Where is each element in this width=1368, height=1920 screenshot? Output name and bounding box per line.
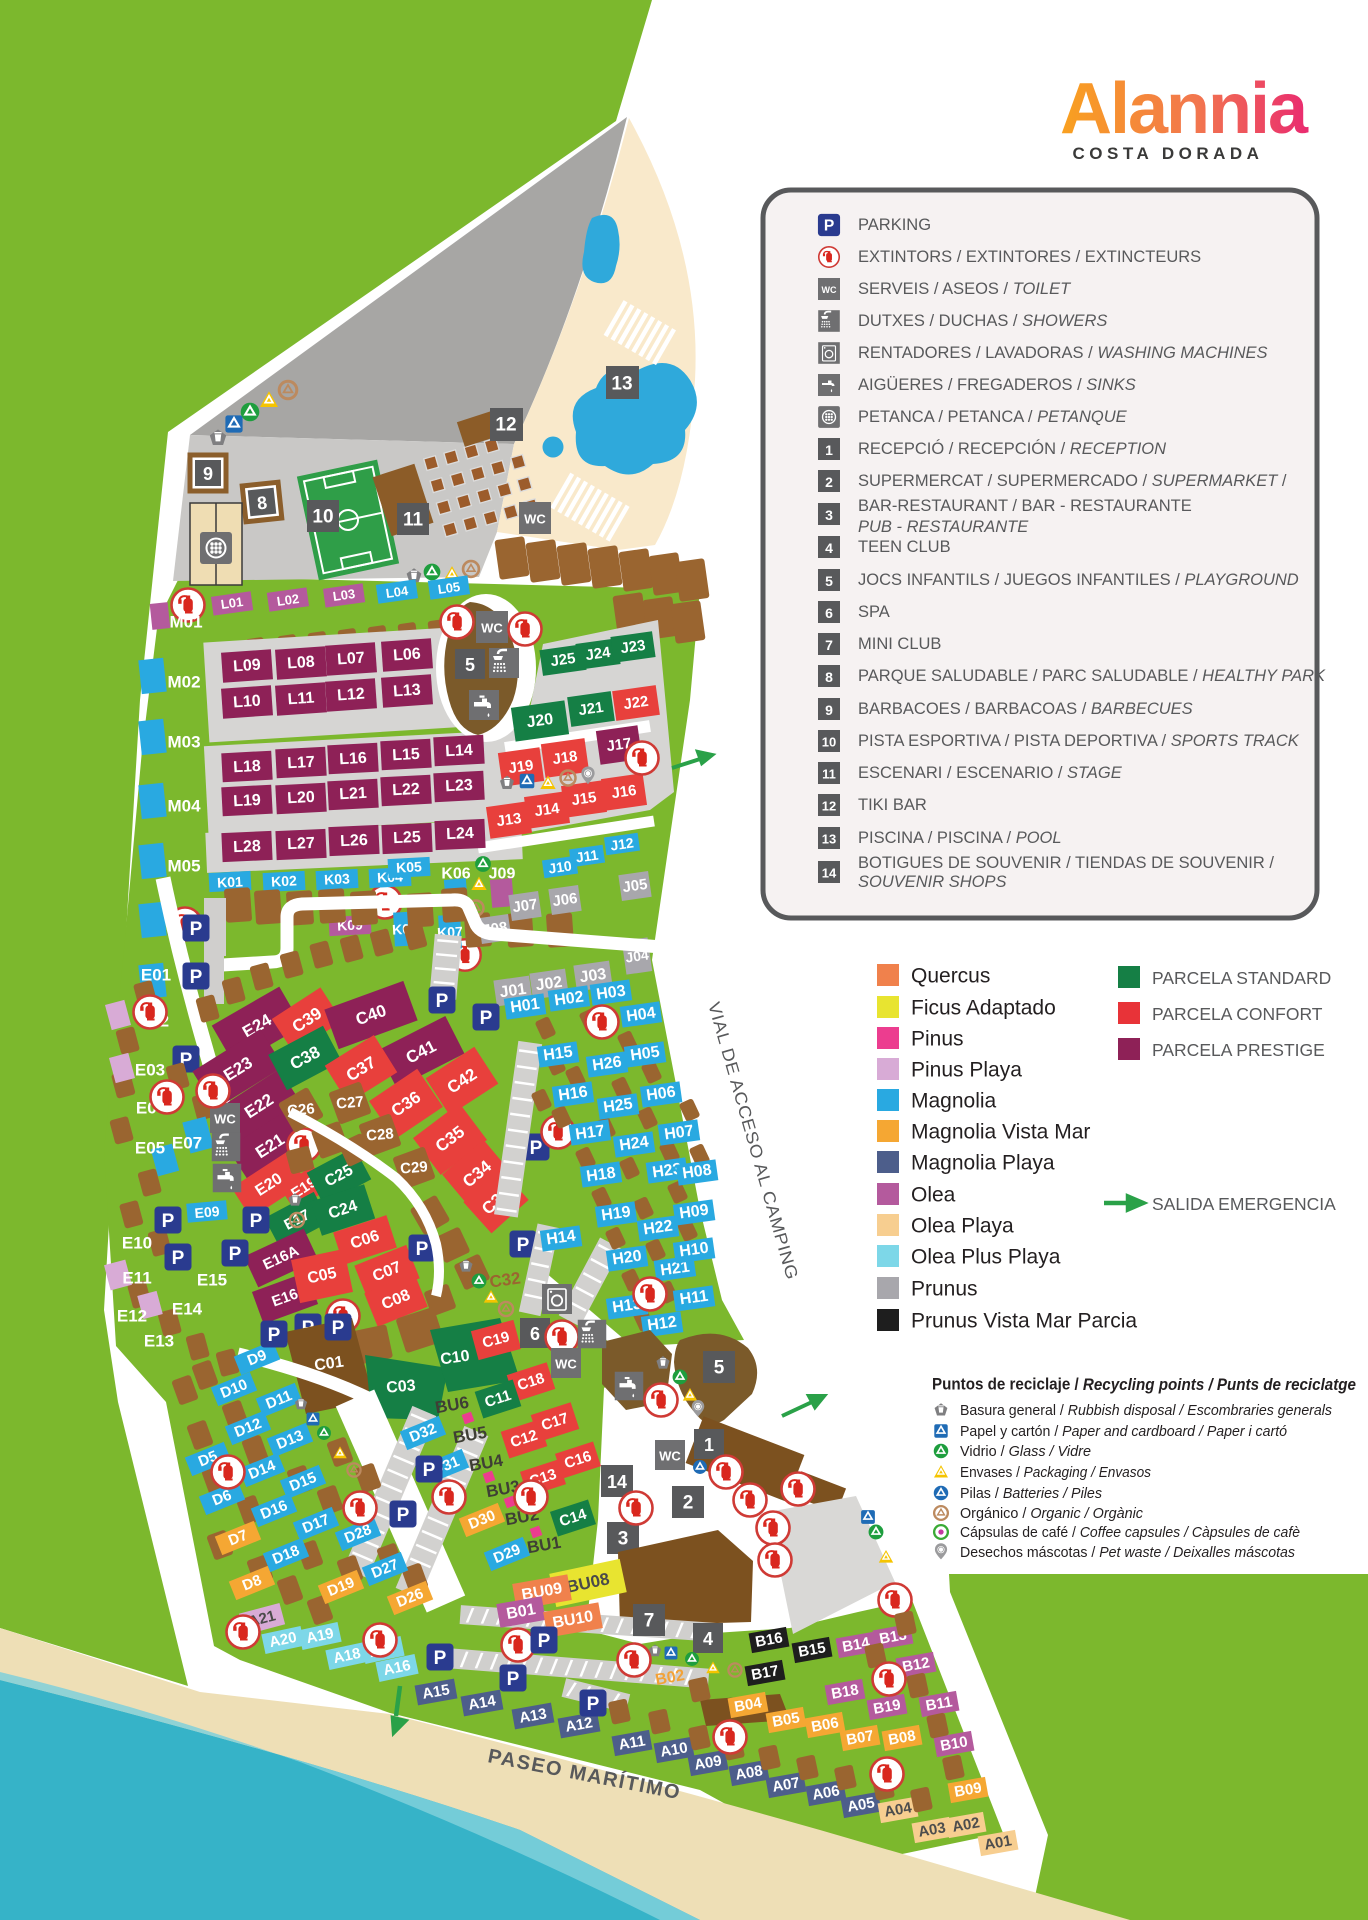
svg-text:6: 6 xyxy=(825,605,833,621)
svg-text:SOUVENIR SHOPS: SOUVENIR SHOPS xyxy=(858,873,1007,891)
svg-text:8: 8 xyxy=(256,493,268,514)
svg-text:DUTXES / DUCHAS / SHOWERS: DUTXES / DUCHAS / SHOWERS xyxy=(858,312,1107,330)
svg-text:PETANCA / PETANCA / PETANQUE: PETANCA / PETANCA / PETANQUE xyxy=(858,408,1128,426)
svg-text:L12: L12 xyxy=(337,686,366,705)
svg-text:WC: WC xyxy=(524,512,546,527)
svg-text:4: 4 xyxy=(703,1629,713,1649)
svg-text:L22: L22 xyxy=(392,781,421,799)
svg-text:L05: L05 xyxy=(437,579,461,597)
svg-text:L18: L18 xyxy=(233,758,262,776)
svg-text:E11: E11 xyxy=(122,1269,151,1288)
svg-text:J12: J12 xyxy=(609,834,635,853)
svg-text:L23: L23 xyxy=(445,777,474,795)
svg-text:1: 1 xyxy=(825,442,833,458)
svg-text:WC: WC xyxy=(822,285,837,295)
svg-text:14: 14 xyxy=(607,1472,627,1492)
svg-text:M01: M01 xyxy=(169,613,202,632)
svg-text:Pinus Playa: Pinus Playa xyxy=(911,1059,1022,1082)
svg-text:K05: K05 xyxy=(396,858,423,875)
svg-text:C03: C03 xyxy=(386,1377,417,1397)
svg-text:5: 5 xyxy=(465,655,475,675)
svg-text:J24: J24 xyxy=(584,644,612,664)
svg-text:L03: L03 xyxy=(332,586,356,604)
svg-text:J16: J16 xyxy=(610,782,637,802)
svg-text:SUPERMERCAT / SUPERMERCADO / S: SUPERMERCAT / SUPERMERCADO / SUPERMARKET… xyxy=(858,472,1287,490)
svg-text:RECEPCIÓ / RECEPCIÓN / RECEPTI: RECEPCIÓ / RECEPCIÓN / RECEPTION xyxy=(858,439,1166,458)
svg-text:ESCENARI / ESCENARIO / STAGE: ESCENARI / ESCENARIO / STAGE xyxy=(858,764,1123,782)
svg-text:5: 5 xyxy=(714,1358,725,1379)
svg-text:PARCELA CONFORT: PARCELA CONFORT xyxy=(1152,1004,1323,1024)
svg-text:JOCS INFANTILS / JUEGOS INFANT: JOCS INFANTILS / JUEGOS INFANTILES / PLA… xyxy=(858,571,1299,589)
svg-text:Orgánico / Organic / Orgànic: Orgánico / Organic / Orgànic xyxy=(960,1506,1144,1522)
svg-text:J23: J23 xyxy=(619,637,646,657)
svg-text:PISTA ESPORTIVA / PISTA DEPORT: PISTA ESPORTIVA / PISTA DEPORTIVA / SPOR… xyxy=(858,732,1300,750)
svg-text:WC: WC xyxy=(214,1112,236,1127)
svg-text:E13: E13 xyxy=(144,1332,174,1351)
svg-text:Pinus: Pinus xyxy=(911,1028,964,1051)
svg-text:J07: J07 xyxy=(511,896,538,916)
svg-text:PARKING: PARKING xyxy=(858,216,931,234)
svg-text:9: 9 xyxy=(825,702,833,718)
svg-text:4: 4 xyxy=(825,540,833,556)
svg-text:L01: L01 xyxy=(220,594,244,612)
svg-text:11: 11 xyxy=(403,510,424,531)
svg-text:L16: L16 xyxy=(339,750,368,768)
svg-text:L25: L25 xyxy=(393,829,421,847)
svg-text:BOTIGUES DE SOUVENIR / TIENDAS: BOTIGUES DE SOUVENIR / TIENDAS DE SOUVEN… xyxy=(858,854,1274,872)
svg-text:Vidrio / Glass / Vidre: Vidrio / Glass / Vidre xyxy=(960,1444,1091,1460)
svg-text:J10: J10 xyxy=(547,857,573,876)
svg-text:Magnolia Playa: Magnolia Playa xyxy=(911,1152,1055,1175)
svg-text:Papel y cartón / Paper and car: Papel y cartón / Paper and cardboard / P… xyxy=(960,1424,1287,1440)
svg-text:L14: L14 xyxy=(445,742,474,760)
svg-text:8: 8 xyxy=(825,669,833,685)
svg-text:J15: J15 xyxy=(570,789,597,809)
svg-text:Olea Playa: Olea Playa xyxy=(911,1215,1014,1238)
svg-text:L06: L06 xyxy=(393,646,422,665)
svg-text:Magnolia: Magnolia xyxy=(911,1090,997,1113)
svg-text:Olea Plus Playa: Olea Plus Playa xyxy=(911,1246,1061,1269)
svg-text:Prunus Vista Mar Parcia: Prunus Vista Mar Parcia xyxy=(911,1310,1137,1333)
svg-text:7: 7 xyxy=(825,637,833,653)
svg-text:SPA: SPA xyxy=(858,603,890,621)
svg-text:MINI CLUB: MINI CLUB xyxy=(858,635,941,653)
svg-text:L19: L19 xyxy=(233,792,262,810)
svg-text:EXTINTORS / EXTINTORES / EXTIN: EXTINTORS / EXTINTORES / EXTINCTEURS xyxy=(858,248,1201,266)
svg-text:Desechos máscotas / Pet waste: Desechos máscotas / Pet waste / Deixalle… xyxy=(960,1545,1295,1561)
svg-text:PISCINA / PISCINA / POOL: PISCINA / PISCINA / POOL xyxy=(858,829,1062,847)
svg-text:L26: L26 xyxy=(340,832,368,850)
svg-text:Prunus: Prunus xyxy=(911,1278,978,1301)
svg-text:6: 6 xyxy=(530,1324,540,1344)
svg-text:TEEN CLUB: TEEN CLUB xyxy=(858,538,951,556)
svg-text:Quercus: Quercus xyxy=(911,965,990,988)
svg-text:7: 7 xyxy=(644,1611,655,1632)
svg-text:RENTADORES / LAVADORAS / WASHI: RENTADORES / LAVADORAS / WASHING MACHINE… xyxy=(858,344,1268,362)
svg-text:E14: E14 xyxy=(172,1300,203,1319)
svg-text:L17: L17 xyxy=(287,754,316,772)
svg-text:L11: L11 xyxy=(287,690,315,709)
svg-text:SALIDA EMERGENCIA: SALIDA EMERGENCIA xyxy=(1152,1194,1336,1214)
svg-text:14: 14 xyxy=(822,866,837,881)
svg-text:L07: L07 xyxy=(337,650,366,669)
svg-text:M04: M04 xyxy=(167,797,201,816)
svg-text:E05: E05 xyxy=(135,1139,165,1158)
svg-text:Pilas / Batteries / Piles: Pilas / Batteries / Piles xyxy=(960,1486,1102,1502)
svg-text:PARCELA PRESTIGE: PARCELA PRESTIGE xyxy=(1152,1040,1325,1060)
svg-text:BAR-RESTAURANT / BAR - RESTAUR: BAR-RESTAURANT / BAR - RESTAURANTE xyxy=(858,497,1192,515)
svg-text:C28: C28 xyxy=(366,1125,395,1144)
svg-text:E15: E15 xyxy=(197,1271,227,1290)
svg-text:L15: L15 xyxy=(392,746,421,764)
svg-text:SERVEIS / ASEOS / TOILET: SERVEIS / ASEOS / TOILET xyxy=(858,280,1072,298)
svg-text:9: 9 xyxy=(203,464,213,484)
svg-text:11: 11 xyxy=(822,767,836,782)
svg-text:M02: M02 xyxy=(167,673,200,692)
svg-text:E09: E09 xyxy=(194,1203,220,1221)
svg-text:Olea: Olea xyxy=(911,1184,956,1207)
svg-text:BARBACOES / BARBACOAS / BARBEC: BARBACOES / BARBACOAS / BARBECUES xyxy=(858,700,1193,718)
svg-text:M03: M03 xyxy=(167,733,200,752)
svg-text:J05: J05 xyxy=(621,876,648,896)
svg-text:E03: E03 xyxy=(135,1061,165,1080)
svg-text:J21: J21 xyxy=(577,699,604,719)
svg-text:13: 13 xyxy=(822,832,836,847)
svg-text:J11: J11 xyxy=(575,846,600,865)
svg-text:E12: E12 xyxy=(117,1307,147,1326)
svg-text:2: 2 xyxy=(683,1493,694,1514)
svg-text:12: 12 xyxy=(822,799,836,814)
svg-text:E07: E07 xyxy=(172,1134,202,1153)
svg-text:Ficus Adaptado: Ficus Adaptado xyxy=(911,997,1056,1020)
svg-text:C29: C29 xyxy=(400,1158,429,1177)
svg-text:L13: L13 xyxy=(393,682,422,701)
svg-text:L10: L10 xyxy=(233,693,262,712)
svg-text:Envases / Packaging / Envasos: Envases / Packaging / Envasos xyxy=(960,1465,1151,1481)
svg-text:J13: J13 xyxy=(495,810,522,830)
svg-text:Basura general / Rubbish dispo: Basura general / Rubbish disposal / Esco… xyxy=(960,1403,1332,1419)
svg-text:WC: WC xyxy=(659,1449,681,1464)
svg-text:3: 3 xyxy=(618,1529,629,1550)
svg-text:J22: J22 xyxy=(622,693,649,713)
svg-text:L08: L08 xyxy=(287,654,316,673)
svg-text:WC: WC xyxy=(555,1357,577,1372)
svg-text:COSTA DORADA: COSTA DORADA xyxy=(1073,144,1264,163)
svg-text:L21: L21 xyxy=(339,785,368,803)
svg-text:J18: J18 xyxy=(551,748,578,768)
svg-text:K03: K03 xyxy=(324,870,351,887)
svg-text:3: 3 xyxy=(825,507,833,523)
svg-text:L02: L02 xyxy=(276,591,300,609)
svg-text:Alannia: Alannia xyxy=(1060,69,1309,149)
svg-text:Magnolia Vista Mar: Magnolia Vista Mar xyxy=(911,1121,1090,1144)
svg-text:L09: L09 xyxy=(233,657,262,676)
svg-text:J14: J14 xyxy=(533,800,561,820)
svg-text:L24: L24 xyxy=(446,825,474,843)
svg-text:J25: J25 xyxy=(549,650,576,670)
svg-text:C27: C27 xyxy=(336,1093,365,1112)
svg-text:TIKI BAR: TIKI BAR xyxy=(858,796,927,814)
svg-text:10: 10 xyxy=(312,507,333,528)
svg-text:13: 13 xyxy=(611,374,632,395)
svg-text:12: 12 xyxy=(495,415,516,436)
svg-text:M05: M05 xyxy=(167,857,200,876)
svg-text:K02: K02 xyxy=(271,872,298,889)
svg-text:PARCELA STANDARD: PARCELA STANDARD xyxy=(1152,968,1331,988)
svg-text:J06: J06 xyxy=(551,890,578,910)
svg-text:2: 2 xyxy=(825,474,833,490)
svg-text:PUB - RESTAURANTE: PUB - RESTAURANTE xyxy=(858,518,1029,536)
svg-text:L27: L27 xyxy=(287,835,315,853)
svg-text:5: 5 xyxy=(825,573,833,589)
svg-text:WC: WC xyxy=(481,621,503,636)
svg-text:1: 1 xyxy=(704,1435,714,1455)
svg-text:E01: E01 xyxy=(141,966,171,985)
svg-text:10: 10 xyxy=(822,735,836,750)
svg-text:E10: E10 xyxy=(122,1234,152,1253)
svg-text:Cápsulas de café / Coffee caps: Cápsulas de café / Coffee capsules / Càp… xyxy=(960,1525,1300,1541)
svg-text:Puntos de reciclaje / Recyclin: Puntos de reciclaje / Recycling points /… xyxy=(932,1375,1356,1394)
svg-text:AIGÜERES / FREGADEROS / SINKS: AIGÜERES / FREGADEROS / SINKS xyxy=(858,376,1136,394)
svg-text:L20: L20 xyxy=(287,789,316,807)
svg-text:L28: L28 xyxy=(233,838,261,856)
svg-text:L04: L04 xyxy=(385,583,410,601)
svg-text:PARQUE SALUDABLE / PARC SALUDA: PARQUE SALUDABLE / PARC SALUDABLE / HEAL… xyxy=(858,667,1326,685)
